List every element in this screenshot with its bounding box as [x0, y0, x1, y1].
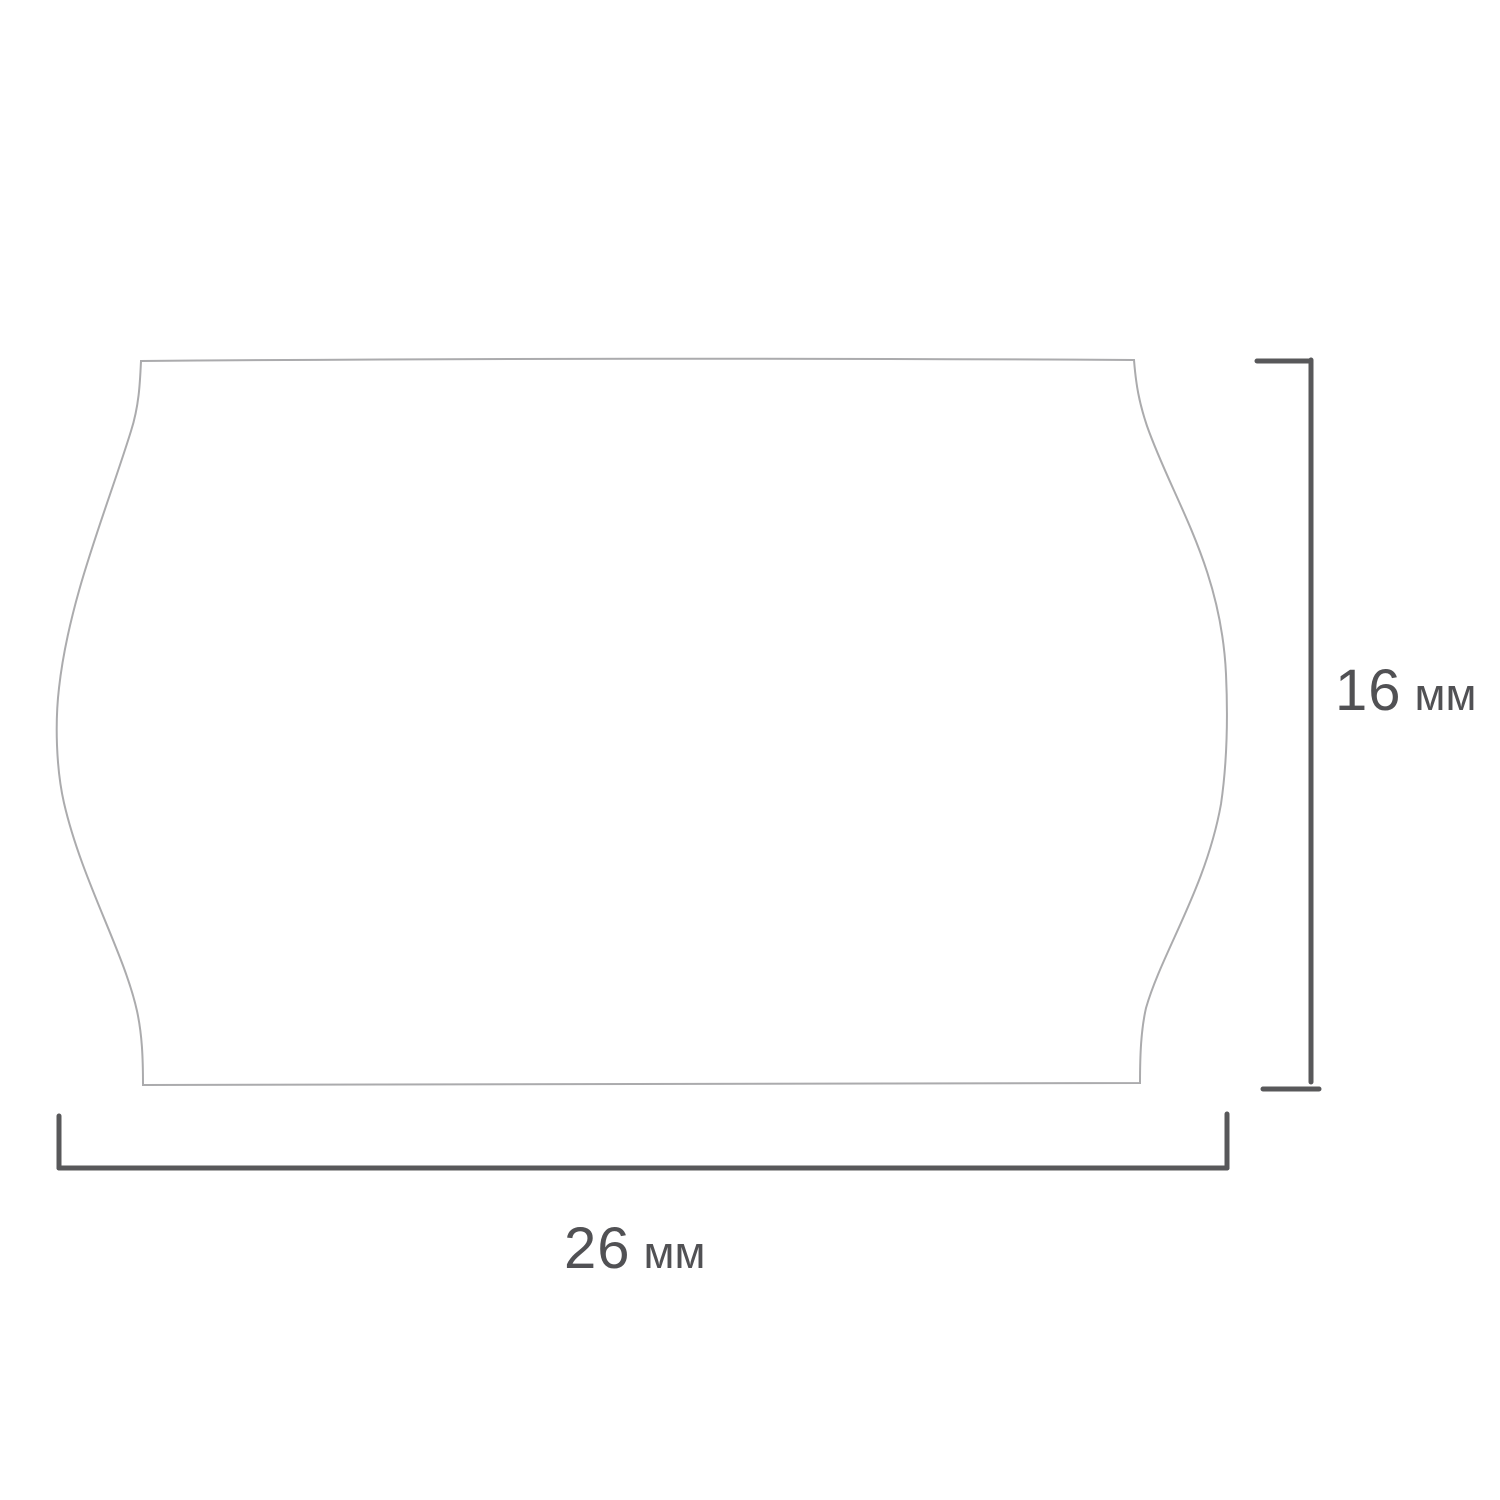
height-dimension-label: 16 мм	[1335, 662, 1476, 720]
width-value: 26	[564, 1220, 631, 1278]
dimension-drawing	[0, 0, 1500, 1500]
price-label-outline	[57, 359, 1227, 1085]
height-value: 16	[1335, 662, 1402, 720]
width-dimension-line	[59, 1114, 1227, 1168]
width-dimension-label: 26 мм	[564, 1220, 705, 1278]
height-unit: мм	[1415, 672, 1477, 717]
height-dimension-line	[1257, 360, 1319, 1089]
diagram-canvas: 16 мм 26 мм	[0, 0, 1500, 1500]
width-unit: мм	[644, 1230, 706, 1275]
